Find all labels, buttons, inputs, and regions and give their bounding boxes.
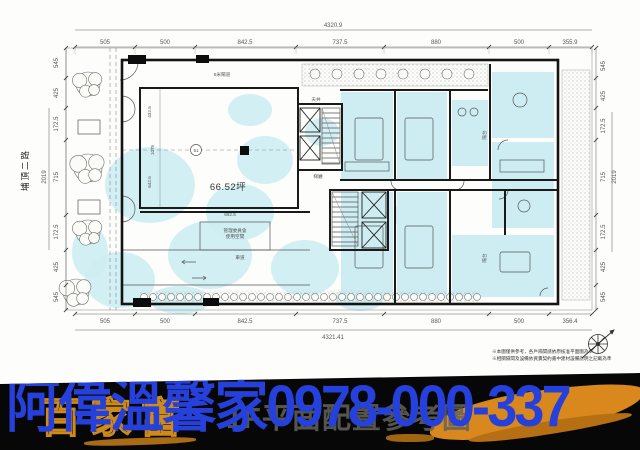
unit-number: 51 — [193, 148, 199, 153]
dim-label: 425 — [601, 261, 607, 272]
dim-label: 880 — [431, 40, 442, 46]
dim-label: 545 — [601, 60, 607, 71]
dim-label: 545 — [601, 291, 607, 302]
dim-label: 500 — [514, 319, 525, 325]
dim-label: 425 — [54, 261, 60, 272]
dim-label: 715 — [601, 171, 607, 182]
dimensions-bottom: 505 500 842.5 737.5 880 500 356.4 4321.4… — [73, 312, 594, 341]
dim-label: 545 — [54, 57, 60, 68]
dim-label: 842.5 — [237, 319, 253, 325]
area-size-label: 66.52坪 — [210, 181, 246, 193]
dim-label: 172.5 — [54, 224, 60, 240]
dimensions-top: 4320.9 505 500 842.5 737.5 880 500 355.9 — [73, 23, 594, 54]
dim-label: 692.5 — [224, 212, 236, 217]
dim-label: 355.9 — [562, 40, 578, 46]
dim-label: 505 — [100, 40, 111, 46]
agent-phone: 0978-000-337 — [266, 374, 568, 439]
dim-label: 172.5 — [601, 118, 607, 134]
dim-label: 500 — [514, 40, 525, 46]
balcony-label: 陽台 — [481, 253, 488, 263]
note-line: ※本圖僅供參考，各戶隔間請依原核准平面圖為準 — [492, 348, 593, 355]
dim-label: 500 — [160, 40, 171, 46]
dim-label: 356.4 — [562, 319, 578, 325]
dim-label: 880 — [431, 319, 442, 325]
dim-top-total: 4320.9 — [324, 23, 343, 29]
dim-label: 842.5 — [237, 40, 253, 46]
ad-banner: 百家富 1F平面配置參考圖 阿偉溫馨家0978-000-337 — [0, 371, 640, 450]
dim-label: 172.5 — [601, 224, 607, 240]
gate-label: 8米閘道 — [214, 71, 231, 78]
screenshot-root: 4320.9 505 500 842.5 737.5 880 500 355.9… — [0, 0, 640, 450]
dim-label: 425 — [54, 87, 60, 98]
lobby-label: 梯廳 — [313, 173, 323, 180]
dim-label: 737.5 — [332, 319, 348, 325]
dim-bottom-total: 4321.41 — [322, 335, 344, 341]
dim-label: 432.5 — [147, 106, 152, 118]
dim-label: 545 — [54, 291, 60, 302]
dim-label: 715 — [54, 171, 60, 182]
dimensions-left: 545 425 172.5 715 172.5 425 545 2019 — [42, 46, 68, 312]
dim-right-total: 2019 — [612, 170, 618, 184]
court-label: 天井 — [311, 96, 321, 103]
driveway-label: 車道 — [235, 254, 245, 261]
disclaimer-notes: ※本圖僅供參考，各戶隔間請依原核准平面圖為準 ※相關隔間及設備依買賣契約書中建材… — [492, 348, 612, 362]
balcony-label: 陽台 — [481, 130, 488, 140]
highlighted-rooms — [341, 72, 554, 297]
floor-plan: 4320.9 505 500 842.5 737.5 880 500 355.9… — [0, 0, 640, 375]
dim-label: 505 — [100, 319, 111, 325]
agent-name: 阿偉溫馨家 — [6, 374, 266, 439]
dim-label: 1075 — [150, 144, 155, 155]
dim-label: 737.5 — [332, 40, 348, 46]
agent-contact-line: 阿偉溫馨家0978-000-337 — [6, 376, 569, 439]
dim-label: 172.5 — [54, 116, 60, 132]
admin-label: 管理委員會 — [224, 227, 247, 234]
note-line: ※相關隔間及設備依買賣契約書中建材設備說明之記載為準 — [492, 355, 612, 362]
dim-label: 425 — [601, 90, 607, 101]
dim-left-total: 2019 — [42, 170, 48, 184]
dimensions-right: 545 425 172.5 715 172.5 425 545 2019 — [594, 46, 618, 312]
road-name-label: 埔頂二路 — [20, 149, 30, 191]
dim-label: 500 — [160, 319, 171, 325]
dim-label: 642.5 — [147, 176, 152, 188]
admin-label: 使用空間 — [226, 233, 245, 240]
